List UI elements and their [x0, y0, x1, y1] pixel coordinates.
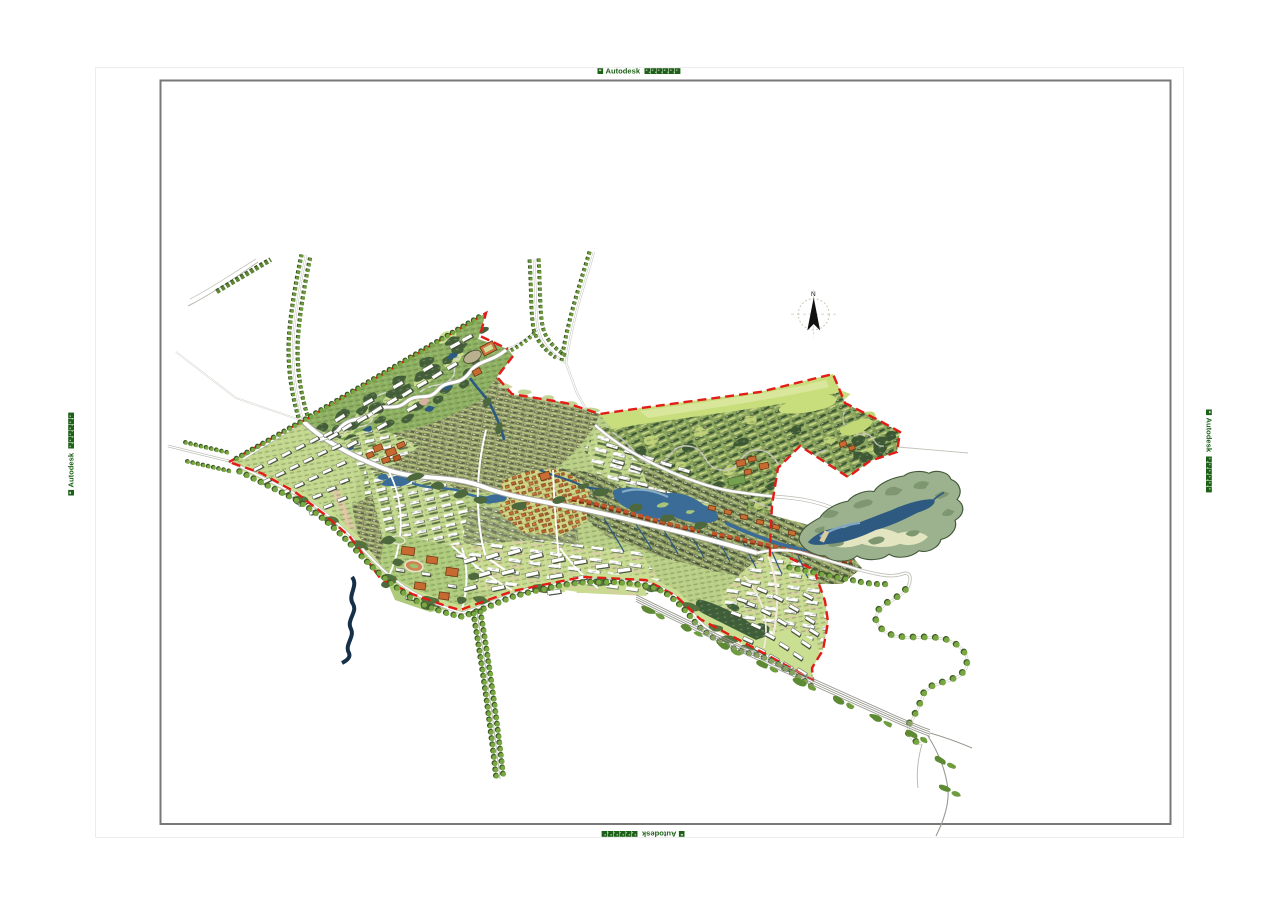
svg-text:N: N [811, 291, 816, 298]
